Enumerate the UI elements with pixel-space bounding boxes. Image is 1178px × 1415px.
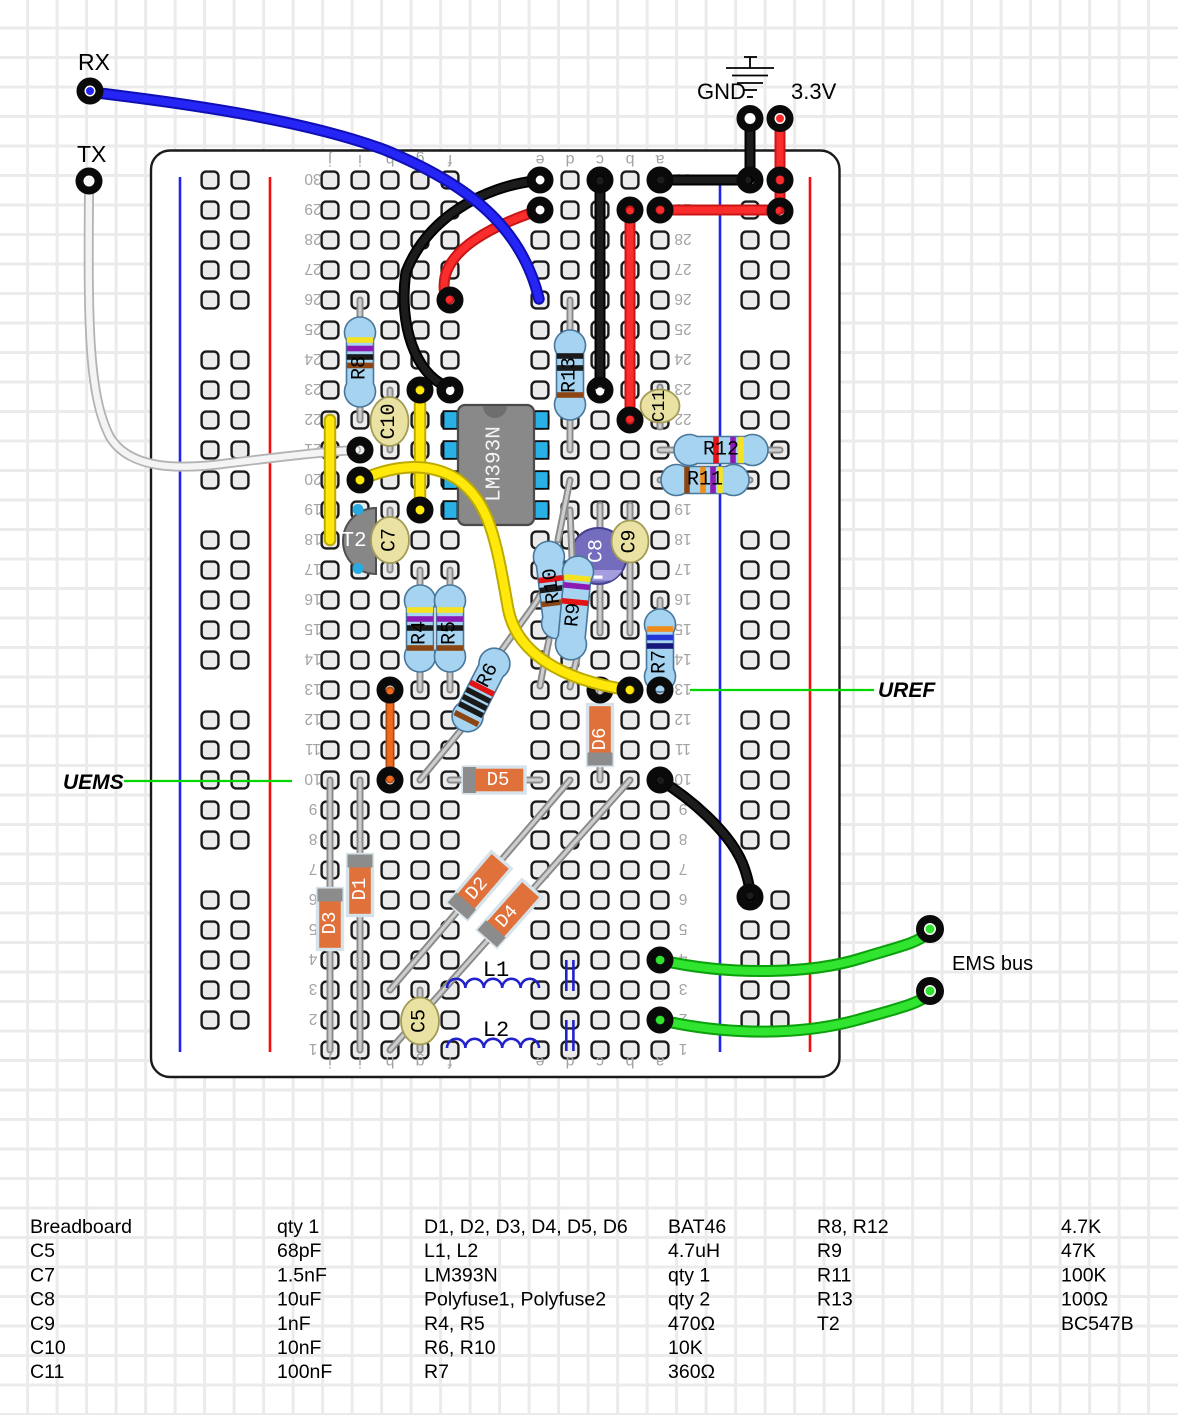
- svg-text:29: 29: [304, 200, 321, 217]
- svg-text:C7: C7: [30, 1264, 55, 1286]
- svg-text:UREF: UREF: [878, 679, 936, 702]
- svg-text:8: 8: [679, 830, 688, 847]
- svg-text:LM393N: LM393N: [484, 426, 507, 502]
- svg-text:23: 23: [304, 380, 321, 397]
- svg-text:C11: C11: [30, 1361, 64, 1383]
- svg-text:26: 26: [304, 290, 321, 307]
- svg-text:qty 1: qty 1: [668, 1264, 710, 1286]
- svg-text:10nF: 10nF: [277, 1337, 322, 1359]
- svg-text:R13: R13: [559, 357, 582, 393]
- svg-text:R11: R11: [687, 469, 723, 492]
- svg-text:28: 28: [304, 230, 321, 247]
- svg-text:TX: TX: [77, 141, 106, 167]
- svg-text:19: 19: [304, 500, 321, 517]
- svg-text:100K: 100K: [1061, 1264, 1107, 1286]
- svg-text:C9: C9: [619, 529, 642, 553]
- svg-text:4.7uH: 4.7uH: [668, 1240, 720, 1262]
- svg-text:LM393N: LM393N: [424, 1264, 498, 1286]
- svg-text:1nF: 1nF: [277, 1313, 311, 1335]
- svg-text:L1, L2: L1, L2: [424, 1240, 478, 1262]
- svg-text:9: 9: [309, 800, 318, 817]
- svg-text:1: 1: [309, 1040, 318, 1057]
- svg-text:20: 20: [304, 470, 322, 487]
- svg-text:68pF: 68pF: [277, 1240, 322, 1262]
- svg-text:d: d: [566, 1053, 575, 1070]
- svg-text:C5: C5: [409, 1009, 432, 1033]
- svg-text:19: 19: [674, 500, 691, 517]
- svg-text:R4, R5: R4, R5: [424, 1313, 485, 1335]
- svg-text:360Ω: 360Ω: [668, 1361, 715, 1383]
- svg-text:D5: D5: [487, 769, 510, 791]
- svg-text:R6, R10: R6, R10: [424, 1337, 496, 1359]
- svg-text:16: 16: [674, 590, 691, 607]
- svg-text:14: 14: [674, 650, 692, 667]
- svg-text:100nF: 100nF: [277, 1361, 332, 1383]
- svg-text:1.5nF: 1.5nF: [277, 1264, 327, 1286]
- svg-text:3: 3: [309, 980, 318, 997]
- svg-text:R11: R11: [817, 1264, 851, 1286]
- svg-text:28: 28: [674, 230, 691, 247]
- svg-text:T2: T2: [341, 530, 366, 553]
- svg-text:10K: 10K: [668, 1337, 703, 1359]
- svg-text:a: a: [655, 151, 664, 168]
- svg-text:j: j: [328, 1053, 333, 1070]
- svg-text:R4: R4: [409, 621, 432, 645]
- svg-text:6: 6: [679, 890, 688, 907]
- svg-text:1: 1: [679, 1040, 688, 1057]
- svg-text:14: 14: [304, 650, 322, 667]
- svg-text:BC547B: BC547B: [1061, 1313, 1134, 1335]
- svg-text:2: 2: [309, 1010, 318, 1027]
- svg-text:13: 13: [674, 680, 691, 697]
- svg-text:27: 27: [304, 260, 321, 277]
- svg-text:Polyfuse1, Polyfuse2: Polyfuse1, Polyfuse2: [424, 1289, 606, 1311]
- svg-text:D1: D1: [349, 878, 371, 901]
- svg-text:100Ω: 100Ω: [1061, 1289, 1108, 1311]
- svg-text:R13: R13: [817, 1289, 853, 1311]
- svg-text:L1: L1: [483, 958, 509, 983]
- svg-text:RX: RX: [78, 49, 110, 75]
- svg-text:b: b: [625, 1053, 634, 1070]
- svg-text:24: 24: [304, 350, 322, 367]
- svg-text:a: a: [655, 1053, 664, 1070]
- svg-text:30: 30: [304, 170, 322, 187]
- svg-text:d: d: [566, 151, 575, 168]
- svg-text:R8, R12: R8, R12: [817, 1216, 889, 1238]
- svg-text:D1, D2, D3, D4, D5, D6: D1, D2, D3, D4, D5, D6: [424, 1216, 628, 1238]
- svg-text:12: 12: [674, 710, 691, 727]
- svg-text:qty 1: qty 1: [277, 1216, 319, 1238]
- svg-text:R9: R9: [561, 602, 586, 628]
- svg-text:i: i: [358, 1053, 362, 1070]
- svg-text:c: c: [596, 1053, 604, 1070]
- svg-text:C7: C7: [379, 528, 402, 552]
- svg-text:4: 4: [308, 950, 317, 967]
- svg-text:D6: D6: [589, 728, 611, 751]
- svg-text:4.7K: 4.7K: [1061, 1216, 1101, 1238]
- svg-text:C8: C8: [30, 1289, 55, 1311]
- svg-text:8: 8: [309, 830, 318, 847]
- svg-text:C5: C5: [30, 1240, 55, 1262]
- svg-text:25: 25: [674, 320, 691, 337]
- svg-text:22: 22: [304, 410, 321, 427]
- svg-text:16: 16: [304, 590, 321, 607]
- svg-text:g: g: [416, 1053, 425, 1070]
- svg-text:C10: C10: [378, 403, 401, 439]
- svg-text:UEMS: UEMS: [63, 771, 124, 794]
- svg-text:24: 24: [674, 350, 692, 367]
- svg-text:10: 10: [304, 770, 322, 787]
- svg-text:R12: R12: [703, 439, 739, 462]
- svg-text:15: 15: [304, 620, 321, 637]
- svg-text:12: 12: [304, 710, 321, 727]
- svg-text:5: 5: [679, 920, 688, 937]
- svg-text:f: f: [447, 151, 452, 168]
- svg-text:15: 15: [674, 620, 691, 637]
- svg-text:EMS bus: EMS bus: [952, 953, 1033, 975]
- svg-text:17: 17: [304, 560, 321, 577]
- svg-text:25: 25: [304, 320, 321, 337]
- svg-text:470Ω: 470Ω: [668, 1313, 715, 1335]
- svg-text:10uF: 10uF: [277, 1289, 322, 1311]
- svg-text:17: 17: [674, 560, 691, 577]
- svg-text:c: c: [596, 151, 604, 168]
- svg-text:e: e: [535, 151, 544, 168]
- svg-text:R7: R7: [424, 1361, 449, 1383]
- svg-text:qty 2: qty 2: [668, 1289, 710, 1311]
- svg-text:3.3V: 3.3V: [791, 79, 837, 104]
- svg-text:L2: L2: [483, 1018, 509, 1043]
- svg-text:7: 7: [309, 860, 318, 877]
- svg-text:D3: D3: [319, 912, 341, 935]
- svg-text:T2: T2: [817, 1313, 840, 1335]
- svg-text:R8: R8: [349, 356, 372, 380]
- svg-text:27: 27: [674, 260, 691, 277]
- svg-text:C10: C10: [30, 1337, 66, 1359]
- svg-text:23: 23: [674, 380, 691, 397]
- svg-text:b: b: [625, 151, 634, 168]
- svg-text:18: 18: [674, 530, 691, 547]
- svg-text:e: e: [535, 1053, 544, 1070]
- svg-text:BAT46: BAT46: [668, 1216, 726, 1238]
- svg-text:R5: R5: [439, 621, 462, 645]
- svg-text:3: 3: [679, 980, 688, 997]
- svg-text:13: 13: [304, 680, 321, 697]
- svg-text:11: 11: [675, 740, 691, 757]
- svg-text:h: h: [386, 1053, 395, 1070]
- svg-text:26: 26: [674, 290, 691, 307]
- svg-text:R7: R7: [649, 650, 672, 674]
- svg-text:C11: C11: [650, 390, 670, 422]
- svg-text:f: f: [447, 1053, 452, 1070]
- svg-text:R9: R9: [817, 1240, 842, 1262]
- svg-text:Breadboard: Breadboard: [30, 1216, 132, 1238]
- svg-text:C9: C9: [30, 1313, 55, 1335]
- svg-text:47K: 47K: [1061, 1240, 1096, 1262]
- svg-text:j: j: [328, 151, 333, 168]
- svg-text:11: 11: [305, 740, 321, 757]
- svg-text:i: i: [358, 151, 362, 168]
- svg-text:18: 18: [304, 530, 321, 547]
- svg-text:7: 7: [679, 860, 688, 877]
